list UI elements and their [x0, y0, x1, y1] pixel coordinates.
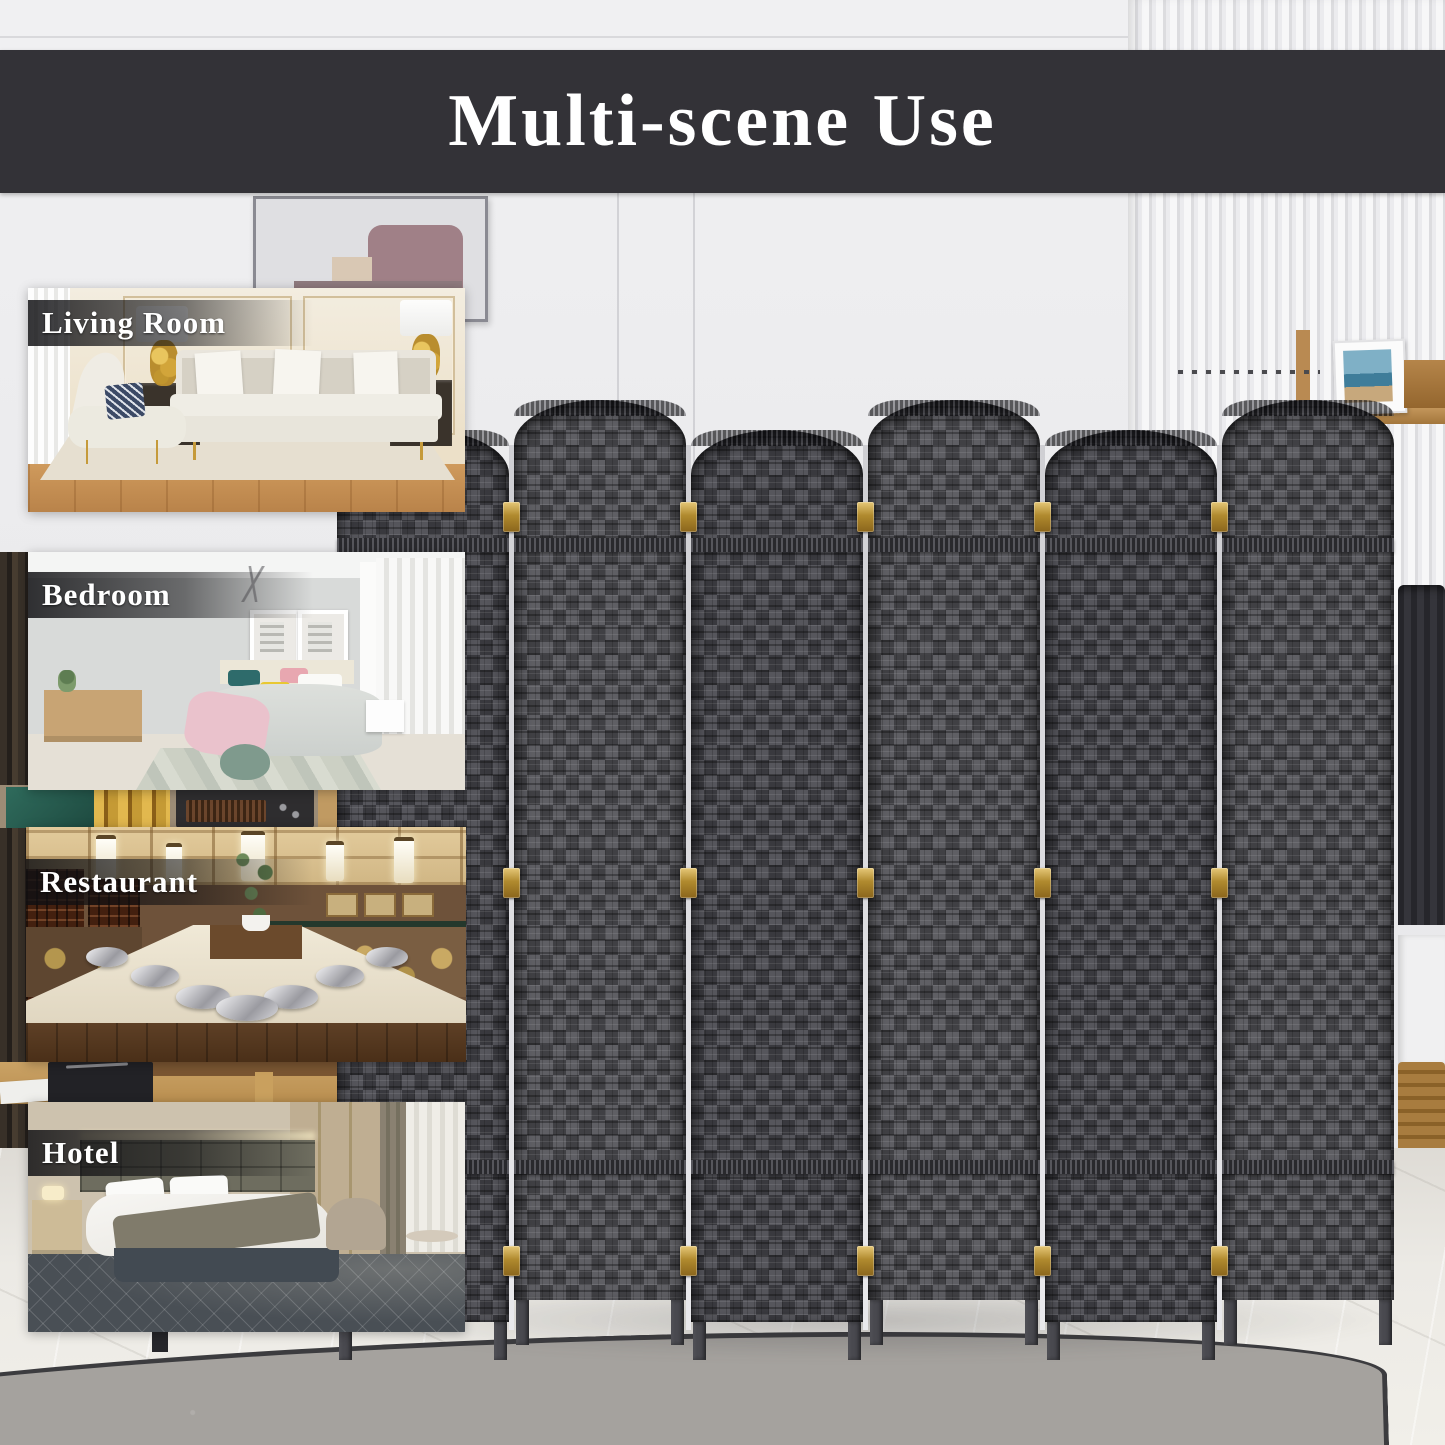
gold-hinge [857, 1246, 874, 1276]
page-title: Multi-scene Use [448, 79, 996, 164]
chaise-leg [156, 440, 158, 464]
desk-shelf-shadow [150, 1062, 345, 1076]
divider-panel-4 [868, 400, 1040, 1300]
panel-hinge-gap [686, 445, 691, 1330]
gold-hinge [1034, 868, 1051, 898]
gold-hinge [680, 1246, 697, 1276]
panel-leg [1379, 1300, 1392, 1345]
divider-panel-3 [691, 430, 863, 1322]
panel-leg [1224, 1300, 1237, 1345]
potted-plant [58, 670, 76, 692]
panel-leg [1025, 1300, 1038, 1345]
gold-lamp-base [150, 340, 178, 386]
panel-leg [848, 1322, 861, 1360]
hanging-lantern [326, 841, 344, 881]
patterned-pillow [104, 382, 145, 420]
wall-panel-art [402, 893, 434, 917]
sofa-leg [193, 442, 196, 460]
panel-leg [671, 1300, 684, 1345]
reading-lamp [42, 1186, 64, 1200]
panel-arch-rim [514, 400, 686, 416]
weave-seam [868, 538, 1040, 552]
panel-leg [1202, 1322, 1215, 1360]
weave-seam [514, 1160, 686, 1174]
weave-seam [1222, 1160, 1394, 1174]
panel-hinge-gap [1040, 445, 1045, 1330]
background-media-console [0, 785, 342, 828]
sofa-front [174, 416, 438, 442]
weave-seam [868, 1160, 1040, 1174]
panel-hinge-gap [863, 445, 868, 1330]
scene-living-room: Living Room [28, 288, 465, 512]
hanging-garment [1398, 585, 1445, 925]
wall-panel-art [326, 893, 358, 917]
gold-hinge [1211, 1246, 1228, 1276]
panel-leg [870, 1300, 883, 1345]
gold-hinge [1034, 1246, 1051, 1276]
divider-panel-5 [1045, 430, 1217, 1322]
sofa-leg [420, 442, 423, 460]
hanging-lantern [394, 837, 414, 883]
silver-cloche [366, 947, 408, 967]
frame-art [260, 622, 284, 652]
scene-hotel: Hotel [28, 1102, 465, 1332]
panel-arch-rim [868, 400, 1040, 416]
centerpiece-pot [242, 915, 270, 931]
silver-cloche [131, 965, 179, 987]
weave-seam [691, 1160, 863, 1174]
chaise-leg [86, 440, 88, 464]
floor-object [152, 1330, 168, 1352]
weave-seam [514, 538, 686, 552]
gold-hinge [503, 502, 520, 532]
panel-leg [1047, 1322, 1060, 1360]
silver-cloche [216, 995, 278, 1021]
gold-hinge [680, 502, 697, 532]
speaker-knobs [276, 802, 304, 820]
scene-label: Hotel [28, 1130, 313, 1176]
title-banner: Multi-scene Use [0, 50, 1445, 193]
divider-panel-2 [514, 400, 686, 1300]
throw-pillow [273, 349, 321, 397]
panel-arch-rim [691, 430, 863, 446]
white-cabinet [1398, 935, 1445, 1065]
weave-seam [1045, 538, 1217, 552]
scene-label: Living Room [28, 300, 313, 346]
weave-seam [1222, 538, 1394, 552]
teal-artwork [6, 787, 94, 828]
divider-panel-6 [1222, 400, 1394, 1300]
gold-hinge [857, 502, 874, 532]
gold-hinge [857, 868, 874, 898]
shelf-wood-box [1404, 360, 1445, 408]
gold-hinge [1034, 502, 1051, 532]
wall-panel-art [364, 893, 396, 917]
gold-hinge [503, 1246, 520, 1276]
gold-pillars [94, 785, 170, 828]
gold-hinge [1211, 502, 1228, 532]
frame-art [308, 622, 332, 652]
silver-cloche [86, 947, 128, 967]
lamp-shade [400, 300, 452, 336]
throw-pillow [353, 351, 399, 397]
sideboard [44, 690, 142, 742]
background-desk [0, 1062, 345, 1104]
gold-hinge [680, 868, 697, 898]
panel-arch-rim [1045, 430, 1217, 446]
scene-label: Bedroom [28, 572, 313, 618]
weave-seam [1045, 1160, 1217, 1174]
black-book [48, 1062, 153, 1104]
record-player [176, 788, 314, 828]
weave-seam [337, 538, 509, 552]
green-pouf [220, 744, 270, 780]
panel-arch-rim [1222, 400, 1394, 416]
scene-restaurant: Restaurant [26, 827, 466, 1062]
buffet-walnut-front [26, 1023, 466, 1062]
panel-hinge-gap [509, 445, 514, 1330]
scene-bedroom: Bedroom [28, 552, 465, 790]
side-table [406, 1230, 458, 1242]
armchair [326, 1198, 386, 1250]
throw-pillow [194, 350, 243, 399]
scene-label: Restaurant [26, 859, 313, 905]
gold-hinge [1211, 868, 1228, 898]
nightstand [366, 700, 404, 732]
panel-leg [516, 1300, 529, 1345]
bed-base [114, 1248, 339, 1282]
product-collage: Living Room Bedroom [0, 0, 1445, 1445]
room-divider [337, 0, 1397, 1445]
desk-leg [255, 1072, 273, 1104]
panel-leg [693, 1322, 706, 1360]
gold-hinge [503, 868, 520, 898]
glasses [66, 1062, 128, 1068]
panel-leg [494, 1322, 507, 1360]
weave-seam [691, 538, 863, 552]
silver-cloche [316, 965, 364, 987]
panel-hinge-gap [1217, 445, 1222, 1330]
speaker-grill [186, 800, 266, 822]
nightstand [32, 1200, 82, 1258]
